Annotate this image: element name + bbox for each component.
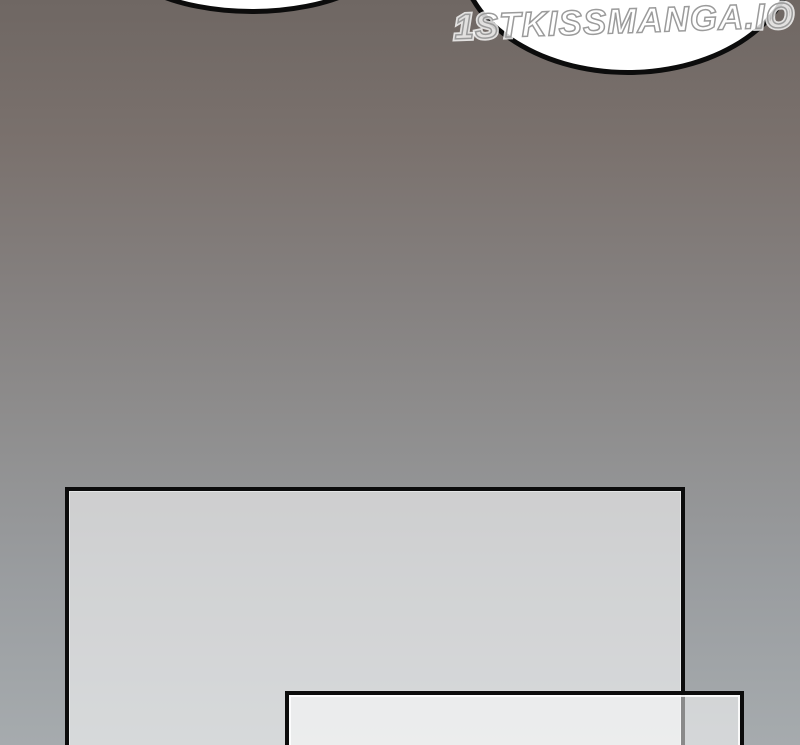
manga-page: 1STKISSMANGA.IO 1STKISSMANGA.IO — [0, 0, 800, 745]
comic-panel-inner — [285, 691, 744, 745]
site-watermark: 1STKISSMANGA.IO 1STKISSMANGA.IO — [793, 0, 795, 40]
speech-bubble-top-left — [107, 0, 397, 14]
speech-bubble-top-right — [458, 0, 798, 75]
